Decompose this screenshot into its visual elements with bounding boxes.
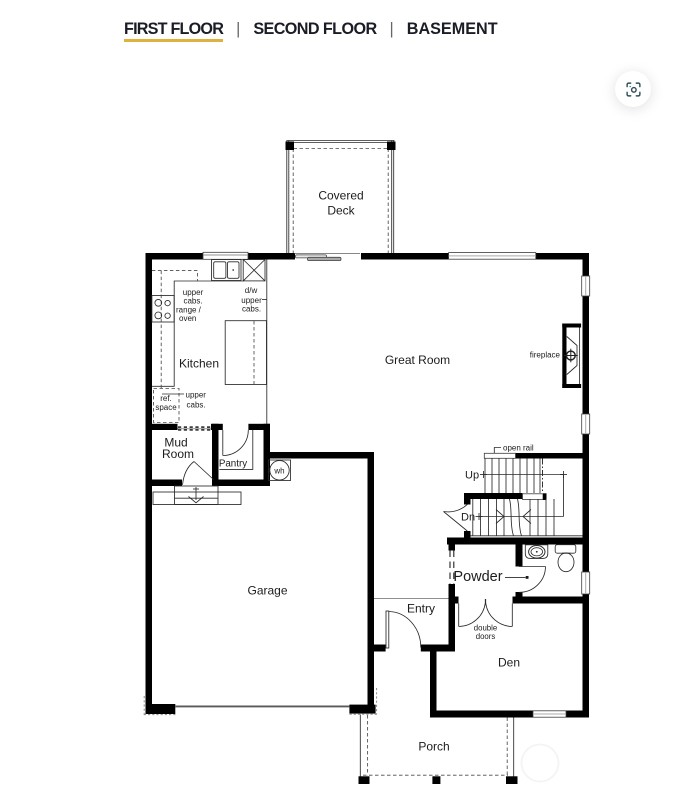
svg-text:open rail: open rail xyxy=(503,444,534,453)
svg-text:Covered: Covered xyxy=(318,189,363,203)
svg-text:upper: upper xyxy=(186,391,207,400)
svg-text:Den: Den xyxy=(498,656,520,670)
svg-text:space: space xyxy=(155,403,177,412)
svg-text:Up: Up xyxy=(465,470,479,482)
svg-text:cabs.: cabs. xyxy=(187,401,206,410)
svg-text:oven: oven xyxy=(179,314,196,323)
svg-text:cabs.: cabs. xyxy=(183,297,202,306)
svg-text:Garage: Garage xyxy=(247,584,287,598)
svg-text:Powder: Powder xyxy=(453,569,502,585)
svg-text:Kitchen: Kitchen xyxy=(179,357,219,371)
svg-text:Entry: Entry xyxy=(407,602,435,616)
svg-text:Pantry: Pantry xyxy=(219,459,247,470)
svg-text:ref.: ref. xyxy=(160,394,172,403)
svg-text:d/w: d/w xyxy=(245,286,258,295)
svg-text:Room: Room xyxy=(162,447,194,461)
svg-text:Porch: Porch xyxy=(418,740,449,754)
svg-text:wh: wh xyxy=(273,467,284,476)
svg-text:cabs.: cabs. xyxy=(242,305,261,314)
svg-text:fireplace: fireplace xyxy=(530,351,561,360)
svg-text:Deck: Deck xyxy=(327,204,355,218)
svg-text:Great Room: Great Room xyxy=(385,353,450,367)
svg-text:Dn: Dn xyxy=(461,512,475,524)
svg-text:doors: doors xyxy=(476,632,496,641)
